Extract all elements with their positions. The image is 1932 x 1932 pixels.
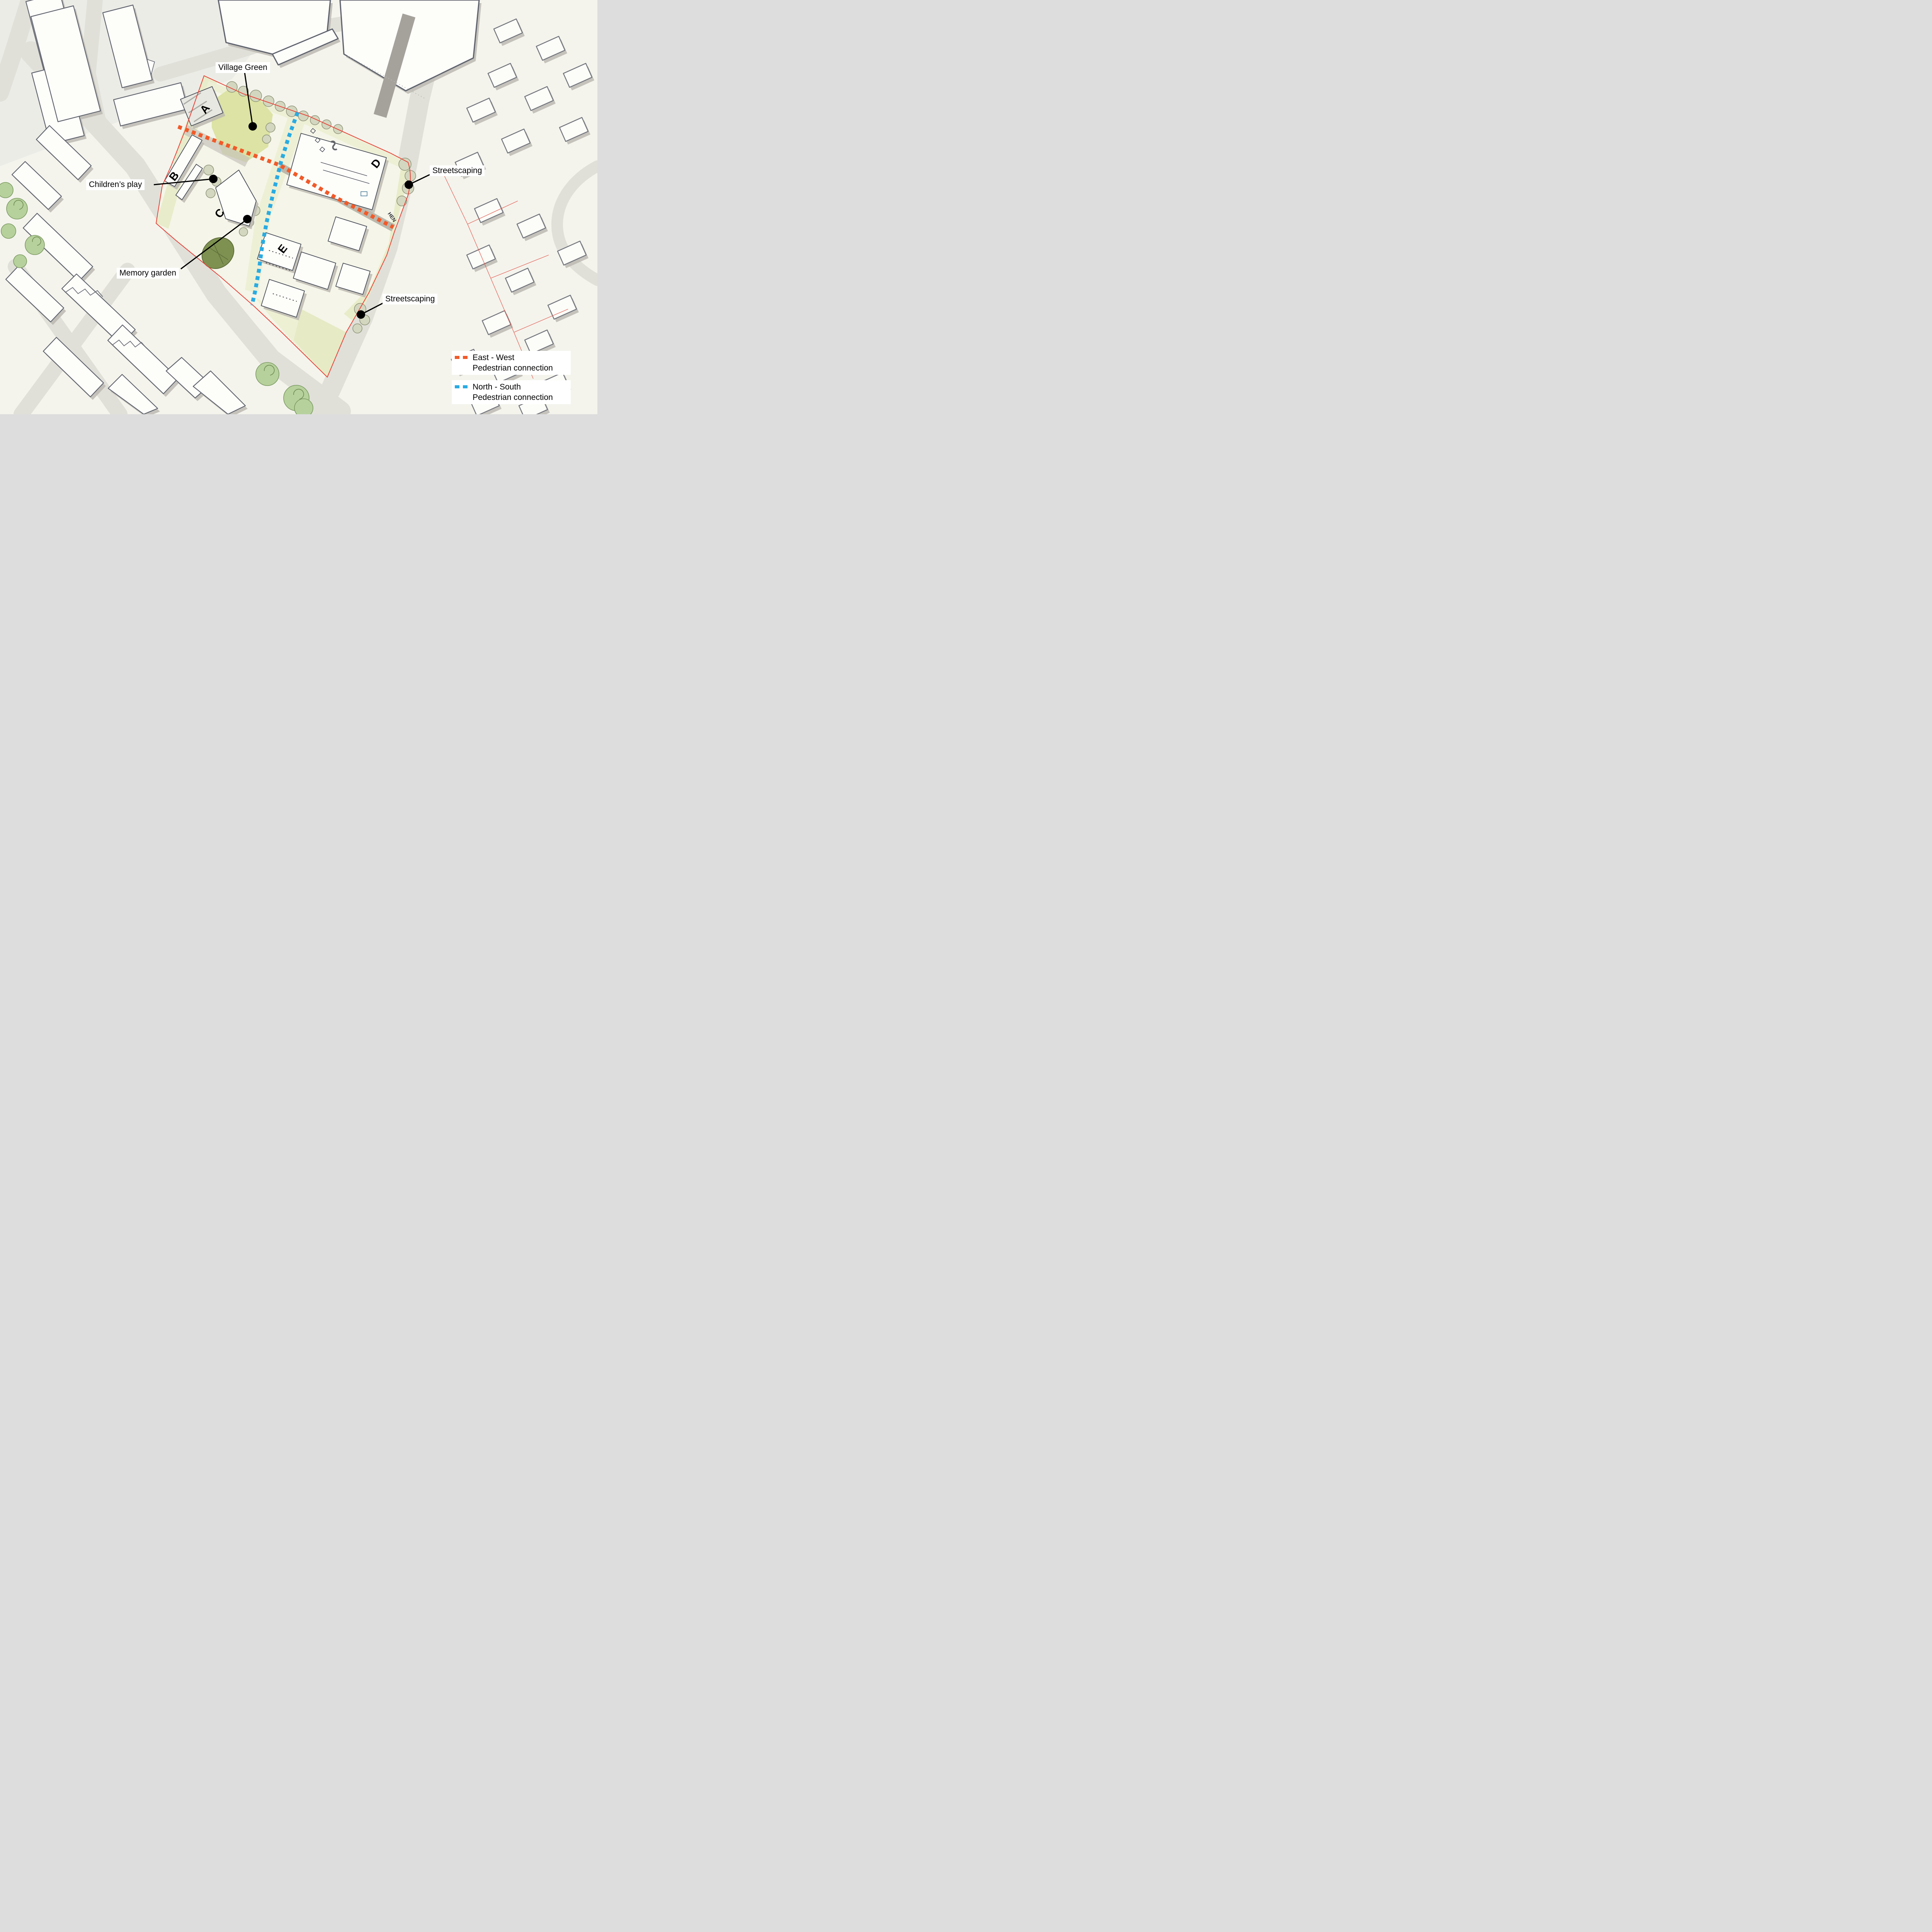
legend-north-south-line2: Pedestrian connection (473, 392, 553, 403)
streetscaping-south-dot (357, 310, 365, 319)
east-west-dash-icon (455, 356, 468, 359)
legend-item-east-west: East - West Pedestrian connection (452, 351, 571, 375)
memory-garden-label: Memory garden (117, 268, 179, 279)
legend-north-south-text: North - South Pedestrian connection (473, 382, 553, 403)
childrens-play-dot (209, 175, 218, 183)
village-green-dot (248, 122, 257, 131)
legend-east-west-text: East - West Pedestrian connection (473, 352, 553, 373)
memory-garden-dot (243, 215, 252, 223)
legend-east-west-line1: East - West (473, 352, 553, 363)
childrens-play-label: Children’s play (86, 179, 145, 190)
streetscaping-north-dot (405, 180, 413, 189)
village-green-label: Village Green (216, 62, 270, 73)
streetscaping-south-label: Streetscaping (383, 294, 437, 304)
legend-north-south-line1: North - South (473, 382, 553, 392)
streetscaping-north-label: Streetscaping (430, 165, 485, 176)
legend-item-north-south: North - South Pedestrian connection (452, 380, 571, 404)
site-plan-canvas: A B C D E HEN Village Green Children’s p… (0, 0, 597, 414)
legend-east-west-line2: Pedestrian connection (473, 363, 553, 373)
north-south-dash-icon (455, 385, 468, 388)
